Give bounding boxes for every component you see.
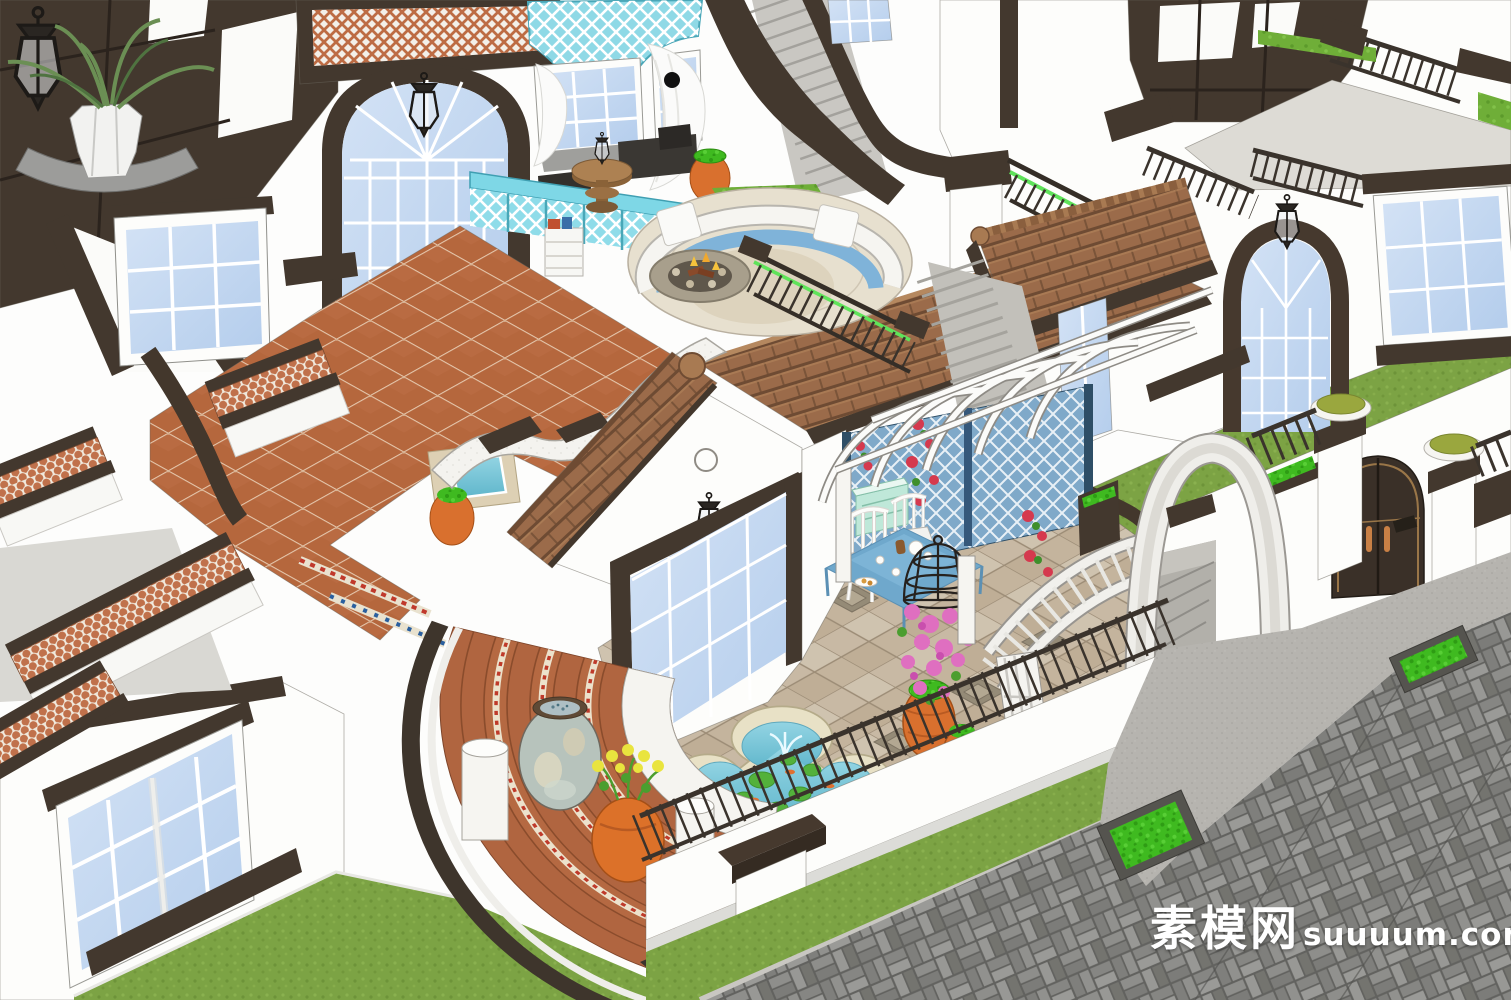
fire-pit bbox=[650, 250, 750, 302]
newel-cylinder bbox=[462, 739, 508, 840]
gable-vent bbox=[695, 449, 717, 471]
left-window bbox=[104, 196, 274, 366]
door-handle bbox=[1384, 526, 1390, 552]
villa-rendering: 素模网suuuum.com bbox=[0, 0, 1511, 1000]
watermark: 素模网suuuum.com bbox=[1150, 906, 1511, 953]
dark-post bbox=[1000, 0, 1018, 128]
pillar-olive-cap bbox=[1317, 394, 1365, 414]
watermark-cjk: 素模网 bbox=[1150, 906, 1300, 953]
door-handle bbox=[1366, 526, 1372, 552]
ridge-end-tile bbox=[679, 353, 705, 379]
curtain-tieback bbox=[664, 72, 680, 88]
seat-back-cushion bbox=[658, 124, 692, 150]
watermark-latin: suuuum.com bbox=[1303, 920, 1511, 951]
scene-canvas bbox=[0, 0, 1511, 1000]
pillar-olive-cap bbox=[1430, 434, 1478, 454]
